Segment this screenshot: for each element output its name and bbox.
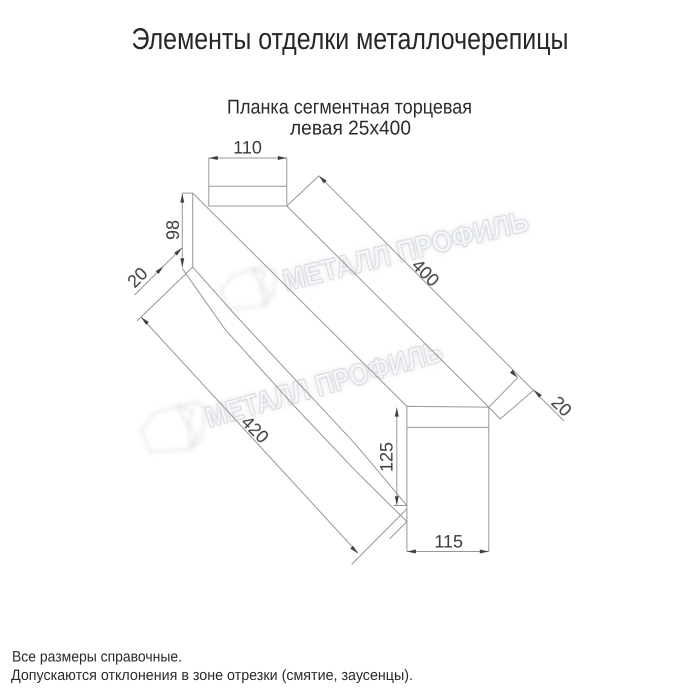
svg-text:98: 98 [163,220,183,240]
svg-text:левая 25х400: левая 25х400 [290,117,411,139]
svg-text:20: 20 [123,263,151,291]
svg-text:Все размеры справочные.: Все размеры справочные. [12,648,182,665]
svg-text:110: 110 [233,138,262,158]
svg-text:МЕТАЛЛ ПРОФИЛЬ: МЕТАЛЛ ПРОФИЛЬ [202,335,447,434]
svg-text:125: 125 [377,442,397,472]
svg-text:115: 115 [434,532,463,552]
svg-text:Планка сегментная торцевая: Планка сегментная торцевая [227,97,472,119]
svg-text:Допускаются отклонения в зоне: Допускаются отклонения в зоне отрезки (с… [11,667,413,684]
svg-text:Элементы отделки металлочерепи: Элементы отделки металлочерепицы [132,23,569,56]
svg-text:МЕТАЛЛ ПРОФИЛЬ: МЕТАЛЛ ПРОФИЛЬ [280,205,532,298]
svg-text:20: 20 [547,392,575,420]
